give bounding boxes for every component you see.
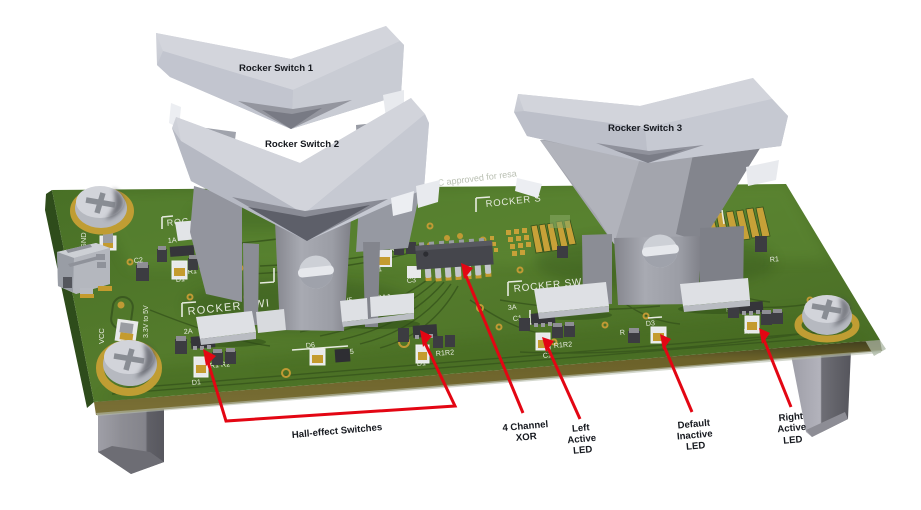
svg-text:R: R: [619, 328, 625, 337]
svg-text:LED: LED: [573, 444, 593, 457]
svg-text:1A: 1A: [167, 235, 177, 245]
svg-text:VCC: VCC: [97, 328, 106, 344]
svg-text:D1: D1: [416, 358, 426, 368]
svg-text:Rocker Switch 1: Rocker Switch 1: [239, 63, 314, 74]
svg-text:XOR: XOR: [515, 431, 537, 444]
svg-text:3.3V to 5V: 3.3V to 5V: [143, 305, 150, 338]
svg-text:Rocker Switch 2: Rocker Switch 2: [265, 139, 339, 150]
svg-text:LED: LED: [783, 434, 803, 447]
svg-text:LED: LED: [686, 440, 706, 453]
svg-text:C2: C2: [133, 255, 143, 265]
svg-text:Rocker Switch 3: Rocker Switch 3: [608, 123, 682, 134]
svg-text:2A: 2A: [183, 326, 193, 336]
svg-text:R1R2: R1R2: [553, 339, 572, 350]
svg-text:R1: R1: [769, 254, 779, 264]
svg-text:D1: D1: [191, 377, 201, 387]
svg-text:R1R2: R1R2: [435, 347, 454, 358]
svg-text:3A: 3A: [507, 302, 517, 312]
svg-text:5: 5: [349, 347, 354, 356]
